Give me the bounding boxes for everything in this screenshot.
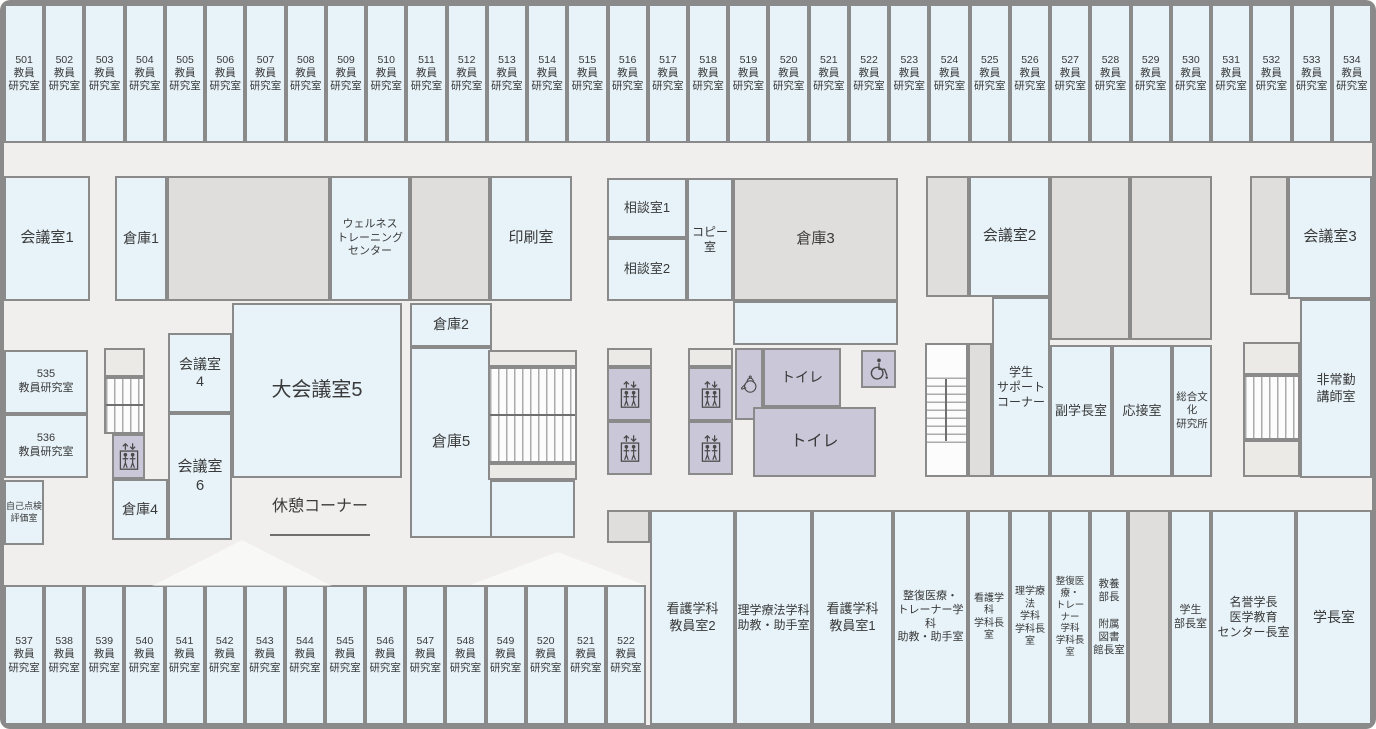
room-bottom-538: 538 教員 研究室 — [44, 585, 84, 725]
room-bottom-545: 545 教員 研究室 — [325, 585, 365, 725]
consultation-room-1: 相談室1 — [607, 178, 687, 238]
storage-3-annex — [733, 301, 898, 345]
room-top-523: 523 教員 研究室 — [889, 4, 929, 143]
room-top-501-label: 501 教員 研究室 — [8, 54, 40, 93]
storage-5-label: 倉庫5 — [432, 433, 470, 452]
elevator-icon — [699, 380, 723, 409]
meeting-room-6-label: 会議室 6 — [177, 458, 222, 496]
wellness-training-center: ウェルネス トレーニング センター — [330, 176, 410, 301]
room-535: 535 教員研究室 — [4, 350, 88, 414]
room-bottom-543-label: 543 教員 研究室 — [249, 635, 281, 674]
stairs-left-midline — [106, 404, 143, 406]
meeting-room-3: 会議室3 — [1288, 176, 1372, 299]
room-top-520: 520 教員 研究室 — [768, 4, 808, 143]
room-top-503-label: 503 教員 研究室 — [89, 54, 121, 93]
elevator-landing-b — [688, 348, 733, 367]
triangle-decor-2 — [470, 552, 645, 585]
copy-room-label: コピー 室 — [692, 225, 728, 255]
room-top-506-label: 506 教員 研究室 — [210, 54, 242, 93]
vice-president-room-label: 副学長室 — [1055, 403, 1107, 419]
gray-square-bottom — [607, 510, 650, 543]
room-top-505: 505 教員 研究室 — [165, 4, 205, 143]
room-top-524: 524 教員 研究室 — [929, 4, 969, 143]
room-bottom-547-label: 547 教員 研究室 — [410, 635, 442, 674]
room-bottom-542-label: 542 教員 研究室 — [209, 635, 241, 674]
meeting-room-3-label: 会議室3 — [1303, 228, 1356, 247]
room-bottom-545-label: 545 教員 研究室 — [329, 635, 361, 674]
large-meeting-room-5: 大会議室5 — [232, 303, 402, 478]
elevator-b1 — [688, 367, 733, 421]
room-bottom-542: 542 教員 研究室 — [205, 585, 245, 725]
room-top-534: 534 教員 研究室 — [1332, 4, 1372, 143]
storage-2: 倉庫2 — [410, 303, 492, 347]
meeting-room-2-gray — [926, 176, 969, 297]
stairs-right-middle-midline — [945, 379, 947, 441]
pt-dept-head-room: 理学療法 学科 学科長室 — [1010, 510, 1050, 725]
room-top-527: 527 教員 研究室 — [1050, 4, 1090, 143]
room-top-529: 529 教員 研究室 — [1131, 4, 1171, 143]
floor-plan: 501 教員 研究室502 教員 研究室503 教員 研究室504 教員 研究室… — [0, 0, 1376, 729]
copy-room: コピー 室 — [687, 178, 733, 301]
accessible-toilet — [861, 350, 896, 388]
gray-column-bottom — [1128, 510, 1170, 725]
student-support-corner: 学生 サポート コーナー — [992, 297, 1050, 477]
liberal-arts-head-library-head-room-label: 教養 部長 附属 図書 館長室 — [1093, 578, 1125, 657]
room-bottom-548: 548 教員 研究室 — [445, 585, 485, 725]
storage-3-label: 倉庫3 — [796, 230, 834, 249]
room-top-514-label: 514 教員 研究室 — [531, 54, 563, 93]
part-time-lecturer-room: 非常勤 講師室 — [1300, 299, 1372, 478]
unlabeled-gray-d — [1130, 176, 1212, 340]
room-top-512: 512 教員 研究室 — [447, 4, 487, 143]
storage-4-label: 倉庫4 — [122, 501, 158, 519]
student-affairs-head-room-label: 学生 部長室 — [1174, 604, 1207, 632]
self-inspection-evaluation-room: 自己点検 評価室 — [4, 480, 44, 545]
room-bottom-521-label: 521 教員 研究室 — [570, 635, 602, 674]
rest-corner-label-label: 休憩コーナー — [272, 497, 368, 517]
stair-landing-center-top — [488, 350, 577, 367]
print-room-label: 印刷室 — [508, 229, 553, 248]
room-top-511: 511 教員 研究室 — [406, 4, 446, 143]
print-room: 印刷室 — [490, 176, 572, 301]
nursing-dept-head-room-label: 看護学科 学科長室 — [970, 593, 1008, 643]
room-bottom-549-label: 549 教員 研究室 — [490, 635, 522, 674]
meeting-room-4: 会議室 4 — [168, 333, 232, 413]
storage-5: 倉庫5 — [410, 347, 492, 538]
consultation-room-2: 相談室2 — [607, 238, 687, 301]
reception-room-label: 応接室 — [1122, 403, 1161, 419]
elevator-icon — [117, 442, 141, 471]
meeting-room-6: 会議室 6 — [168, 413, 232, 540]
honorary-president-medical-education-center-head-room: 名誉学長 医学教育 センター長室 — [1211, 510, 1296, 725]
vice-president-room: 副学長室 — [1050, 345, 1112, 477]
room-top-524-label: 524 教員 研究室 — [934, 54, 966, 93]
judo-trainer-dept-head-room: 整復医療・ トレーナー 学科 学科長室 — [1050, 510, 1090, 725]
room-top-517-label: 517 教員 研究室 — [652, 54, 684, 93]
unlabeled-gray-c — [1050, 176, 1130, 340]
president-room-label: 学長室 — [1313, 609, 1355, 627]
room-bottom-540-label: 540 教員 研究室 — [129, 635, 161, 674]
student-support-corner-label: 学生 サポート コーナー — [997, 365, 1045, 410]
room-bottom-537-label: 537 教員 研究室 — [8, 635, 40, 674]
room-bottom-543: 543 教員 研究室 — [245, 585, 285, 725]
nursing-faculty-room-2: 看護学科 教員室2 — [650, 510, 735, 725]
room-top-528-label: 528 教員 研究室 — [1095, 54, 1127, 93]
room-top-527-label: 527 教員 研究室 — [1054, 54, 1086, 93]
toilet-lower-label: トイレ — [790, 432, 838, 452]
storage-3: 倉庫3 — [733, 178, 898, 301]
room-top-534-label: 534 教員 研究室 — [1336, 54, 1368, 93]
room-top-530: 530 教員 研究室 — [1171, 4, 1211, 143]
room-top-515-label: 515 教員 研究室 — [572, 54, 604, 93]
room-top-519: 519 教員 研究室 — [728, 4, 768, 143]
room-top-531-label: 531 教員 研究室 — [1215, 54, 1247, 93]
room-535-label: 535 教員研究室 — [19, 368, 74, 396]
room-bottom-547: 547 教員 研究室 — [405, 585, 445, 725]
room-top-508: 508 教員 研究室 — [286, 4, 326, 143]
room-bottom-541-label: 541 教員 研究室 — [169, 635, 201, 674]
room-bottom-541: 541 教員 研究室 — [165, 585, 205, 725]
room-top-504-label: 504 教員 研究室 — [129, 54, 161, 93]
elevator-icon — [618, 434, 642, 463]
room-top-502-label: 502 教員 研究室 — [49, 54, 81, 93]
room-top-506: 506 教員 研究室 — [205, 4, 245, 143]
stair-landing-right-top — [1243, 342, 1300, 375]
meeting-room-3-gray — [1250, 176, 1288, 295]
toilet-upper: トイレ — [763, 348, 841, 407]
honorary-president-medical-education-center-head-room-label: 名誉学長 医学教育 センター長室 — [1217, 595, 1289, 640]
storage-4: 倉庫4 — [112, 479, 168, 540]
room-bottom-546-label: 546 教員 研究室 — [369, 635, 401, 674]
room-bottom-546: 546 教員 研究室 — [365, 585, 405, 725]
room-top-532-label: 532 教員 研究室 — [1256, 54, 1288, 93]
elevator-icon — [699, 434, 723, 463]
general-culture-research-institute: 総合文化 研究所 — [1172, 345, 1212, 477]
room-536-label: 536 教員研究室 — [19, 432, 74, 460]
meeting-room-4-label: 会議室 4 — [179, 356, 221, 391]
meeting-room-1-label: 会議室1 — [20, 229, 73, 248]
kettle-icon — [739, 373, 759, 395]
elevator-icon — [618, 380, 642, 409]
meeting-room-1: 会議室1 — [4, 176, 90, 301]
room-bottom-548-label: 548 教員 研究室 — [450, 635, 482, 674]
room-top-531: 531 教員 研究室 — [1211, 4, 1251, 143]
wheelchair-icon — [868, 357, 890, 381]
room-top-503: 503 教員 研究室 — [84, 4, 124, 143]
elevator-b2 — [688, 421, 733, 475]
room-top-530-label: 530 教員 研究室 — [1175, 54, 1207, 93]
nursing-faculty-room-2-label: 看護学科 教員室2 — [666, 601, 718, 634]
elevator-landing-a — [607, 348, 652, 367]
room-bottom-544-label: 544 教員 研究室 — [289, 635, 321, 674]
room-top-510-label: 510 教員 研究室 — [370, 54, 402, 93]
room-top-519-label: 519 教員 研究室 — [733, 54, 765, 93]
stair-landing-right-bottom — [1243, 440, 1300, 477]
nursing-dept-head-room: 看護学科 学科長室 — [968, 510, 1010, 725]
stairs-center-midline — [490, 414, 575, 416]
room-bottom-538-label: 538 教員 研究室 — [48, 635, 80, 674]
room-top-518: 518 教員 研究室 — [688, 4, 728, 143]
room-top-502: 502 教員 研究室 — [44, 4, 84, 143]
reception-room: 応接室 — [1112, 345, 1172, 477]
pt-dept-head-room-label: 理学療法 学科 学科長室 — [1012, 586, 1048, 649]
room-536: 536 教員研究室 — [4, 414, 88, 478]
room-top-507-label: 507 教員 研究室 — [250, 54, 282, 93]
room-top-509: 509 教員 研究室 — [326, 4, 366, 143]
rest-corner-underline — [270, 534, 370, 536]
room-top-533: 533 教員 研究室 — [1292, 4, 1332, 143]
part-time-lecturer-room-label: 非常勤 講師室 — [1316, 372, 1355, 405]
room-top-523-label: 523 教員 研究室 — [894, 54, 926, 93]
room-top-532: 532 教員 研究室 — [1251, 4, 1291, 143]
gray-strip-right — [968, 343, 992, 477]
triangle-decor-1 — [152, 540, 332, 586]
storage-1: 倉庫1 — [115, 176, 167, 301]
nursing-faculty-room-1: 看護学科 教員室1 — [812, 510, 893, 725]
large-meeting-room-5-label: 大会議室5 — [271, 378, 362, 403]
toilet-upper-label: トイレ — [781, 369, 823, 387]
room-top-513: 513 教員 研究室 — [487, 4, 527, 143]
wellness-training-center-label: ウェルネス トレーニング センター — [337, 218, 403, 259]
self-inspection-evaluation-room-label: 自己点検 評価室 — [6, 501, 42, 524]
room-bottom-522: 522 教員 研究室 — [606, 585, 646, 725]
room-top-514: 514 教員 研究室 — [527, 4, 567, 143]
meeting-room-2-label: 会議室2 — [983, 227, 1036, 246]
room-top-509-label: 509 教員 研究室 — [330, 54, 362, 93]
room-top-510: 510 教員 研究室 — [366, 4, 406, 143]
room-top-528: 528 教員 研究室 — [1090, 4, 1130, 143]
room-top-516-label: 516 教員 研究室 — [612, 54, 644, 93]
elevator-a2 — [607, 421, 652, 475]
pt-assistant-room: 理学療法学科 助教・助手室 — [735, 510, 812, 725]
general-culture-research-institute-label: 総合文化 研究所 — [1174, 391, 1210, 430]
student-affairs-head-room: 学生 部長室 — [1170, 510, 1211, 725]
room-top-512-label: 512 教員 研究室 — [451, 54, 483, 93]
room-top-507: 507 教員 研究室 — [245, 4, 285, 143]
room-top-521: 521 教員 研究室 — [809, 4, 849, 143]
room-bottom-520: 520 教員 研究室 — [526, 585, 566, 725]
room-top-529-label: 529 教員 研究室 — [1135, 54, 1167, 93]
storage-5-annex — [490, 480, 575, 538]
room-bottom-537: 537 教員 研究室 — [4, 585, 44, 725]
room-bottom-540: 540 教員 研究室 — [124, 585, 164, 725]
meeting-room-2: 会議室2 — [969, 176, 1050, 297]
nursing-faculty-room-1-label: 看護学科 教員室1 — [826, 601, 878, 634]
storage-1-label: 倉庫1 — [123, 230, 159, 248]
room-top-521-label: 521 教員 研究室 — [813, 54, 845, 93]
rest-corner-label: 休憩コーナー — [240, 488, 400, 526]
pt-assistant-room-label: 理学療法学科 助教・助手室 — [737, 603, 809, 633]
room-top-525: 525 教員 研究室 — [970, 4, 1010, 143]
room-top-517: 517 教員 研究室 — [648, 4, 688, 143]
room-top-508-label: 508 教員 研究室 — [290, 54, 322, 93]
unlabeled-gray-a — [167, 176, 330, 301]
toilet-lower: トイレ — [753, 407, 876, 477]
room-top-501: 501 教員 研究室 — [4, 4, 44, 143]
judo-trainer-dept-head-room-label: 整復医療・ トレーナー 学科 学科長室 — [1052, 576, 1088, 659]
room-top-516: 516 教員 研究室 — [608, 4, 648, 143]
room-bottom-522-label: 522 教員 研究室 — [610, 635, 642, 674]
president-room: 学長室 — [1296, 510, 1372, 725]
room-top-518-label: 518 教員 研究室 — [692, 54, 724, 93]
room-top-522-label: 522 教員 研究室 — [853, 54, 885, 93]
room-bottom-521: 521 教員 研究室 — [566, 585, 606, 725]
room-top-520-label: 520 教員 研究室 — [773, 54, 805, 93]
room-top-504: 504 教員 研究室 — [125, 4, 165, 143]
room-top-515: 515 教員 研究室 — [567, 4, 607, 143]
elevator-left — [112, 434, 145, 479]
judo-trainer-assistant-room: 整復医療・ トレーナー学科 助教・助手室 — [893, 510, 968, 725]
storage-2-label: 倉庫2 — [433, 316, 469, 334]
room-top-522: 522 教員 研究室 — [849, 4, 889, 143]
consultation-room-1-label: 相談室1 — [624, 200, 670, 216]
room-bottom-549: 549 教員 研究室 — [486, 585, 526, 725]
room-bottom-539: 539 教員 研究室 — [84, 585, 124, 725]
room-bottom-520-label: 520 教員 研究室 — [530, 635, 562, 674]
judo-trainer-assistant-room-label: 整復医療・ トレーナー学科 助教・助手室 — [895, 590, 966, 645]
room-top-505-label: 505 教員 研究室 — [169, 54, 201, 93]
consultation-room-2-label: 相談室2 — [624, 261, 670, 277]
room-top-526-label: 526 教員 研究室 — [1014, 54, 1046, 93]
liberal-arts-head-library-head-room: 教養 部長 附属 図書 館長室 — [1090, 510, 1128, 725]
stair-landing-center-bottom — [488, 463, 577, 480]
room-bottom-544: 544 教員 研究室 — [285, 585, 325, 725]
room-top-513-label: 513 教員 研究室 — [491, 54, 523, 93]
stairs-right — [1243, 375, 1300, 440]
elevator-a1 — [607, 367, 652, 421]
room-top-533-label: 533 教員 研究室 — [1296, 54, 1328, 93]
unlabeled-gray-b — [410, 176, 490, 301]
room-top-526: 526 教員 研究室 — [1010, 4, 1050, 143]
room-bottom-539-label: 539 教員 研究室 — [89, 635, 121, 674]
room-top-511-label: 511 教員 研究室 — [411, 54, 443, 93]
stair-landing-left — [104, 348, 145, 377]
room-top-525-label: 525 教員 研究室 — [974, 54, 1006, 93]
